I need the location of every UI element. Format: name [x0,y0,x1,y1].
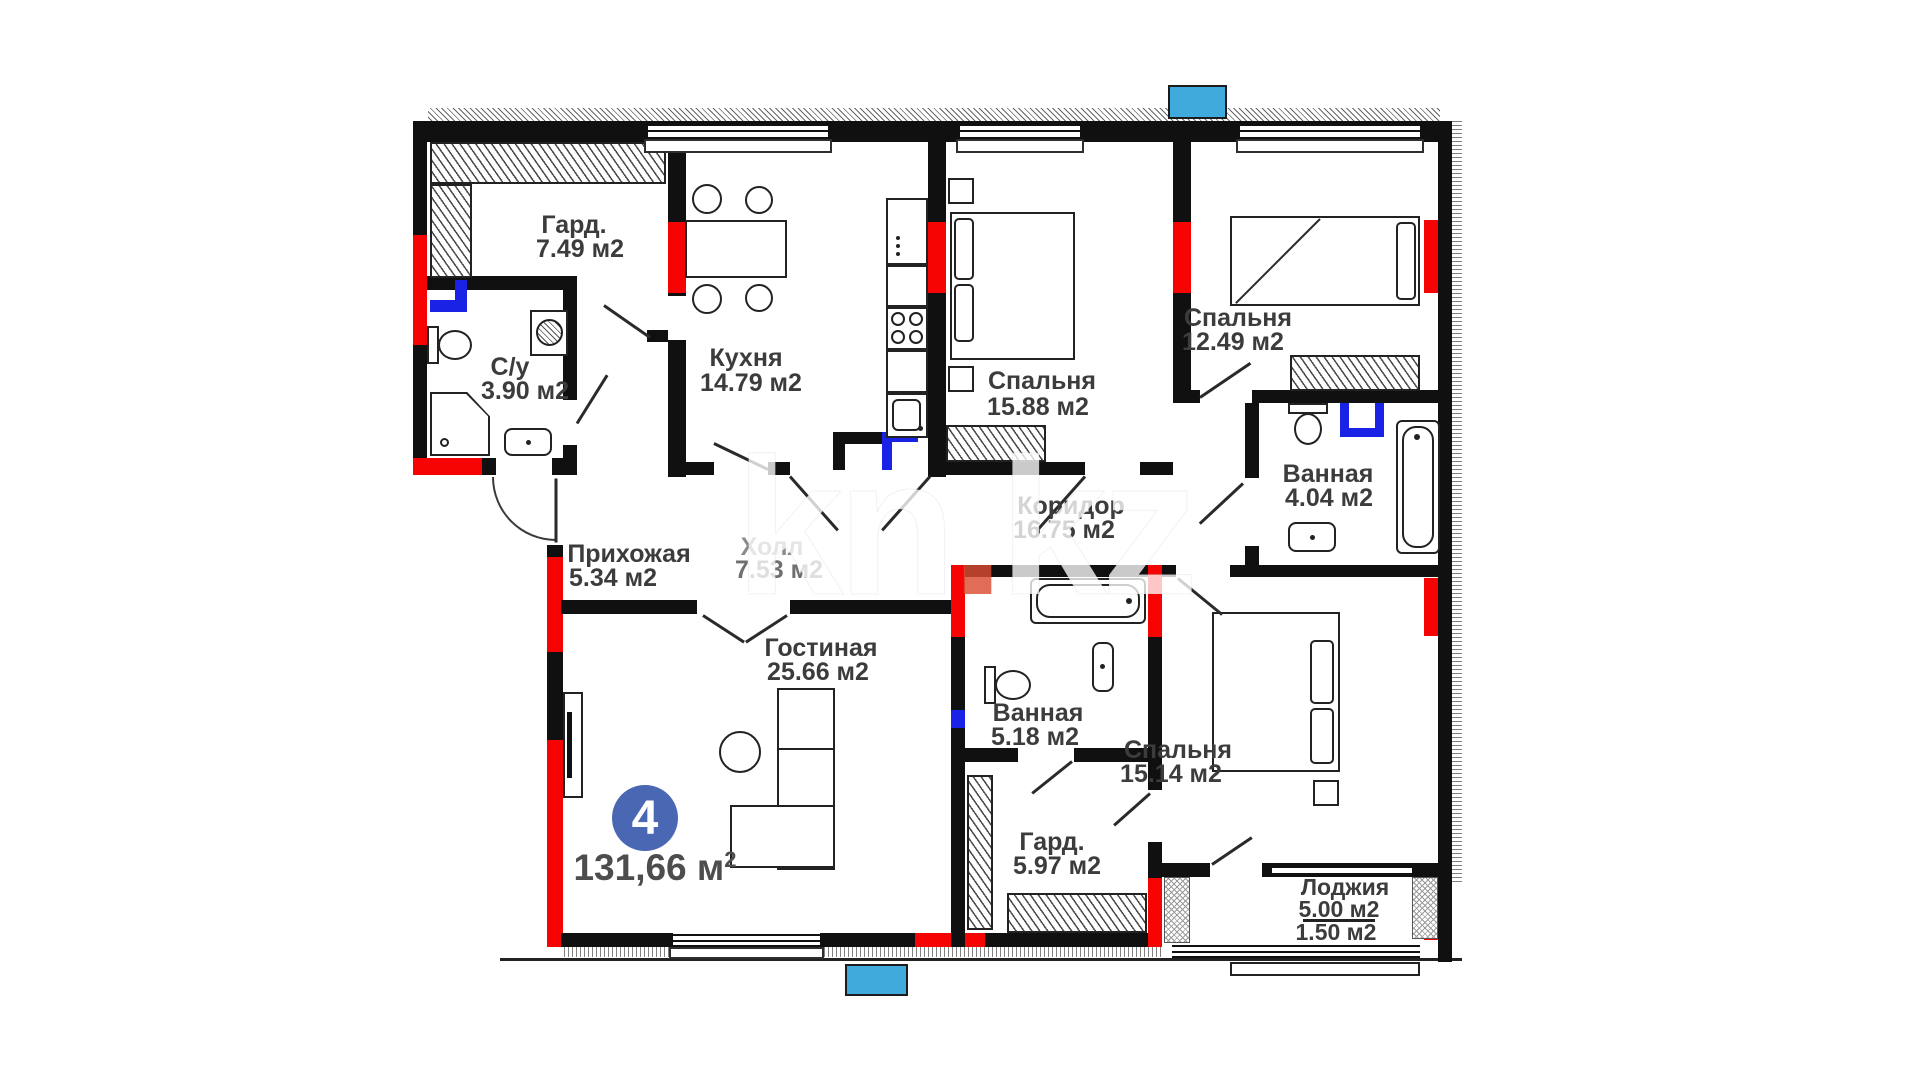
wall-accent-red [915,933,985,947]
wall-accent-red [1148,565,1162,637]
window [960,124,1080,139]
room-label-kitchen-area: 14.79 м2 [700,370,802,396]
tv-screen [567,712,572,778]
room-label-wardrobe1-area: 7.49 м2 [536,236,624,262]
door-leaf [789,476,839,532]
door-leaf [713,442,768,471]
door-leaf [1113,792,1151,826]
room-label-bedroom1-name: Спальня [988,368,1096,394]
balcony-door-leaf [1211,836,1252,865]
wall [686,462,714,475]
balcony-marker-bottom [845,964,908,996]
wall [547,652,563,740]
wall-accent-red [1148,878,1162,947]
wall [561,600,697,614]
room-label-hall-area: 7.53 м2 [735,557,823,583]
wall [1230,565,1452,577]
chair [745,284,773,312]
kitchen-counter [886,265,928,307]
wall [668,340,686,477]
nightstand [948,366,974,392]
dining-table [685,220,787,278]
room-label-wc-area: 3.90 м2 [481,378,569,404]
wall [951,637,965,947]
total-area-value: 131,66 м [573,847,724,888]
wall [790,600,965,614]
total-area-sup: 2 [724,847,736,872]
loggia-hatch [1164,877,1190,943]
pipe-riser [430,300,467,312]
wall [1252,390,1452,403]
pipe-shaft [1340,403,1384,437]
bathtub [1036,584,1140,618]
exterior-insulation-band-top [428,108,1440,122]
toilet [438,330,472,360]
door-leaf [1031,760,1073,794]
sofa [730,805,835,868]
nightstand [948,178,974,204]
wall [820,933,915,947]
sink-drain [918,426,923,431]
wall [561,933,673,947]
chair [692,184,722,214]
chair [745,186,773,214]
room-label-living-area: 25.66 м2 [767,659,869,685]
floor-plan: Гард. 7.49 м2 С/у 3.90 м2 Кухня 14.79 м2… [0,0,1920,1080]
room-label-bath1-area: 4.04 м2 [1285,485,1373,511]
door-leaf [881,476,931,532]
wall [1162,863,1210,877]
shower-drain [440,438,449,447]
tv-stand [563,692,583,798]
wall [833,443,845,470]
wall [413,276,577,290]
pipe-riser [882,442,892,470]
pillow [954,284,974,342]
counter-knob [896,236,900,240]
wardrobe-hatch [967,775,993,930]
pillow [954,218,974,280]
exterior-band-bottom [561,947,1162,957]
pillow [1310,708,1334,764]
sink-drain [1310,535,1315,540]
wall [768,462,790,475]
wall-accent-red [413,235,427,345]
wall [552,458,577,475]
wall-accent-red [1424,220,1438,293]
loggia-hatch [1412,877,1438,939]
wall-accent-red [547,740,563,947]
balcony-ledge [1230,962,1420,976]
wall [1438,121,1452,962]
counter-knob [896,244,900,248]
wardrobe-hatch [1007,893,1147,933]
room-label-loggia-area2: 1.50 м2 [1296,920,1377,944]
sink-drain [526,440,531,445]
wall [1173,390,1200,403]
pillow [1396,222,1416,300]
nightstand [1313,780,1339,806]
window [1172,945,1420,958]
entrance-door-leaf [555,479,558,543]
wall [930,462,1085,475]
door-leaf [1199,482,1244,524]
door-leaf [603,304,651,338]
window [673,934,820,947]
room-label-corridor-area: 16.75 м2 [1013,517,1115,543]
wall [482,458,496,475]
door-leaf [1177,577,1223,615]
bathtub-drain [1414,434,1420,440]
wardrobe-hatch [946,425,1046,462]
door-leaf [1199,362,1251,399]
stove-burner [909,312,923,326]
wall [928,142,946,477]
wardrobe-hatch [430,142,666,184]
room-label-bath2-area: 5.18 м2 [991,724,1079,750]
bathtub [1402,426,1434,548]
bathtub-drain [1126,598,1132,604]
toilet [995,670,1031,700]
wall [1245,403,1259,478]
room-label-bedroom2-area: 12.49 м2 [1182,329,1284,355]
wall-accent-red [668,222,686,293]
wall [965,565,1148,577]
window-sill [1236,139,1424,153]
kitchen-sink [892,399,921,431]
window [1240,124,1420,139]
wall [547,545,563,557]
sofa-seam [779,748,833,750]
wall-accent-red [951,565,965,637]
room-label-bedroom3-area: 15.14 м2 [1120,761,1222,787]
window-sill [669,947,824,959]
kitchen-counter [886,198,928,265]
entrance-door-arc [492,477,556,541]
room-label-wardrobe2-area: 5.97 м2 [1013,853,1101,879]
room-label-entry-area: 5.34 м2 [569,565,657,591]
sink-drain [1100,664,1105,669]
chair [692,284,722,314]
washing-machine-door [536,319,563,346]
window [648,124,828,139]
site-boundary-line [500,958,1462,961]
room-label-loggia-area: 5.00 м2 [1299,897,1380,921]
room-label-bedroom1-area: 15.88 м2 [987,394,1089,420]
balcony-marker-top [1168,85,1227,119]
total-area: 131,66 м2 [573,847,736,889]
bed [1230,216,1420,306]
door-leaf [702,614,745,643]
wall-accent-red [413,458,482,475]
toilet [1294,413,1322,445]
wall [985,933,1162,947]
wall-accent-red [928,222,946,293]
window-sill [956,139,1084,153]
wall [1140,462,1173,475]
stove-burner [891,312,905,326]
stove-burner [891,330,905,344]
wall-accent-red [1424,578,1438,636]
kitchen-counter [886,350,928,393]
counter-knob [896,252,900,256]
apartment-number: 4 [632,791,659,846]
window-sill [644,139,832,153]
coffee-table [719,731,761,773]
door-leaf [576,374,609,424]
wall [1162,565,1176,577]
wall-accent-red [1173,222,1191,293]
wardrobe-hatch [430,184,472,278]
exterior-band-right [1452,121,1462,885]
wardrobe-hatch [1290,355,1420,391]
pipe-riser [951,710,965,728]
room-label-kitchen-name: Кухня [709,345,782,371]
pillow [1310,640,1334,704]
stove-burner [909,330,923,344]
apartment-number-badge: 4 [612,785,678,851]
